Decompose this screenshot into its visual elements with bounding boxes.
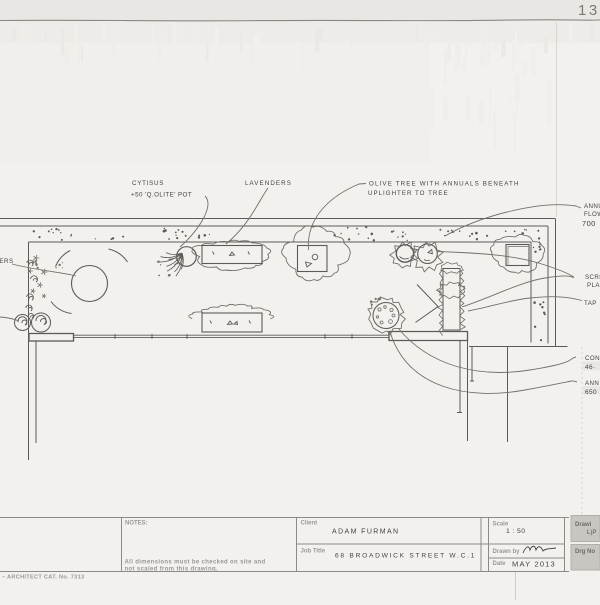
svg-text:ANNUAL: ANNUAL [584,203,600,210]
svg-text:Client: Client [301,521,318,527]
svg-text:Drawn by: Drawn by [493,549,521,555]
svg-text:OLIVE TREE WITH ANNUALS BENEAT: OLIVE TREE WITH ANNUALS BENEATH [369,181,520,188]
svg-text:46·: 46· [585,364,596,371]
svg-text:+50 'Q.OLITE' POT: +50 'Q.OLITE' POT [131,192,192,199]
svg-text:NOTES:: NOTES: [125,521,148,527]
svg-text:Date: Date [493,561,507,567]
svg-text:ANN: ANN [585,380,599,387]
svg-text:Drawi: Drawi [575,522,592,528]
svg-text:MAY 2013: MAY 2013 [512,560,556,569]
svg-text:CLIMBERS: CLIMBERS [0,258,14,265]
svg-text:All dimensions must be checked: All dimensions must be checked on site a… [125,560,266,566]
svg-text:13: 13 [578,2,600,19]
svg-text:PLA: PLA [587,282,600,289]
svg-text:Scale: Scale [493,522,509,528]
svg-text:TAP: TAP [584,300,597,307]
svg-text:Drg No: Drg No [575,549,595,555]
svg-text:1 : 50: 1 : 50 [506,528,525,535]
svg-text:Job Title: Job Title [301,549,326,555]
svg-text:CON: CON [585,355,600,362]
svg-text:L)P: L)P [587,530,596,536]
svg-text:CYTISUS: CYTISUS [132,180,164,187]
svg-text:ADAM FURMAN: ADAM FURMAN [332,529,400,536]
svg-text:SCRE: SCRE [585,274,600,281]
svg-text:700: 700 [582,219,596,228]
svg-text:650: 650 [585,389,597,396]
svg-text:– ARCHITECT CAT. No. 7313: – ARCHITECT CAT. No. 7313 [2,575,84,581]
svg-text:LAVENDERS: LAVENDERS [245,180,292,187]
svg-text:68 BROADWICK STREET W.C.1: 68 BROADWICK STREET W.C.1 [335,553,476,560]
svg-text:not scaled from this drawing.: not scaled from this drawing. [125,567,219,573]
svg-text:UPLIGHTER TO TREE: UPLIGHTER TO TREE [368,190,449,197]
svg-text:FLOWE: FLOWE [584,211,600,218]
